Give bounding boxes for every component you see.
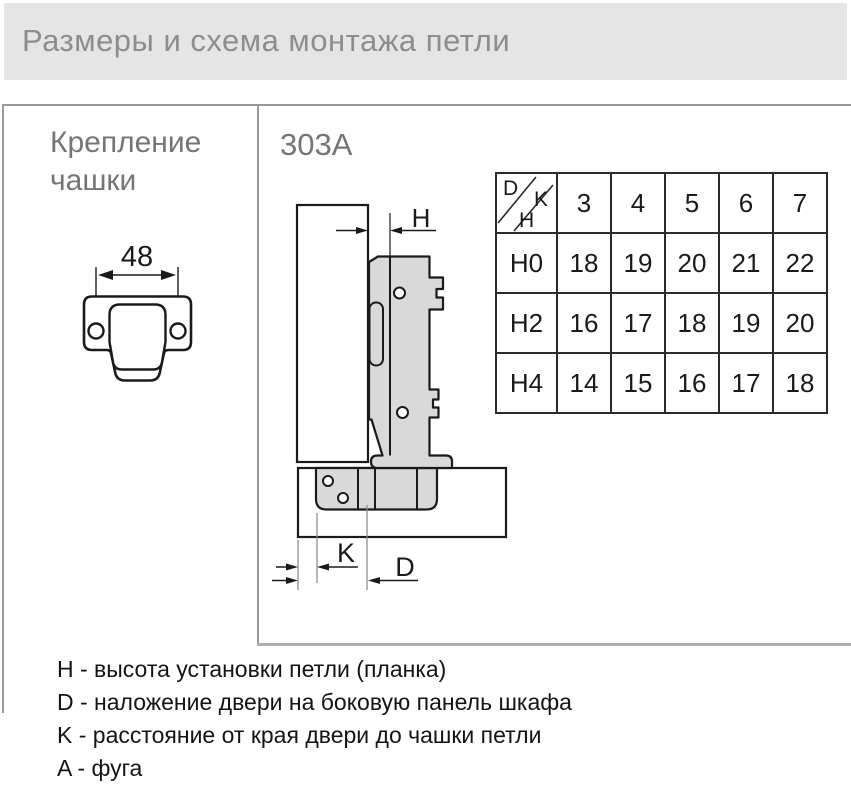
table-cell: 14 (557, 353, 611, 413)
legend-item-h: H - высота установки петли (планка) (57, 653, 572, 686)
table-col-header: 4 (611, 173, 665, 233)
page: Размеры и схема монтажа петли Крепление … (0, 0, 851, 808)
content-box-bottom-border (257, 643, 851, 646)
legend: H - высота установки петли (планка) D - … (57, 653, 572, 785)
table-col-header: 6 (719, 173, 773, 233)
legend-item-d: D - наложение двери на боковую панель шк… (57, 686, 572, 719)
table-cell: 20 (773, 293, 827, 353)
table-col-header: 5 (665, 173, 719, 233)
content-box-top-border (2, 104, 851, 106)
content-box-left-border (2, 104, 4, 713)
table-cell: 19 (611, 233, 665, 293)
table-cell: 15 (611, 353, 665, 413)
table-cell: 22 (773, 233, 827, 293)
legend-item-k: K - расстояние от края двери до чашки пе… (57, 719, 572, 752)
table-row: H0 18 19 20 21 22 (496, 233, 827, 293)
corner-label-d: D (503, 178, 518, 199)
hinge-dimensions-table: D K H 3 4 5 6 7 H0 18 19 20 21 22 H2 16 … (495, 172, 828, 414)
table-cell: 18 (557, 233, 611, 293)
page-title: Размеры и схема монтажа петли (22, 23, 510, 59)
table-cell: 21 (719, 233, 773, 293)
table-cell: 18 (665, 293, 719, 353)
table-cell: 20 (665, 233, 719, 293)
table-row: H4 14 15 16 17 18 (496, 353, 827, 413)
table-cell: 16 (665, 353, 719, 413)
table-corner-cell: D K H (496, 173, 557, 233)
header-band: Размеры и схема монтажа петли (4, 3, 847, 80)
table-row-label: H4 (496, 353, 557, 413)
table-row-label: H2 (496, 293, 557, 353)
table-col-header: 3 (557, 173, 611, 233)
table-cell: 19 (719, 293, 773, 353)
table-cell: 17 (611, 293, 665, 353)
left-panel-title: Крепление чашки (50, 124, 201, 200)
corner-label-k: K (534, 189, 548, 210)
legend-item-a: A - фуга (57, 752, 572, 785)
table-col-header: 7 (773, 173, 827, 233)
table-row: H2 16 17 18 19 20 (496, 293, 827, 353)
dim-h-label: H (412, 203, 431, 233)
dim-k-label: K (337, 538, 355, 568)
table-cell: 18 (773, 353, 827, 413)
corner-label-h: H (519, 210, 534, 231)
table-cell: 16 (557, 293, 611, 353)
cup-mounting-diagram: 48 (55, 238, 207, 400)
hinge-section-diagram: H K D (265, 195, 520, 600)
cup-width-dimension: 48 (121, 241, 153, 273)
left-panel-title-line2: чашки (50, 162, 201, 200)
table-cell: 17 (719, 353, 773, 413)
model-title: 303A (280, 127, 352, 163)
dim-d-label: D (395, 552, 415, 582)
left-panel-title-line1: Крепление (50, 124, 201, 162)
table-row-label: H0 (496, 233, 557, 293)
content-box-divider (257, 104, 259, 646)
